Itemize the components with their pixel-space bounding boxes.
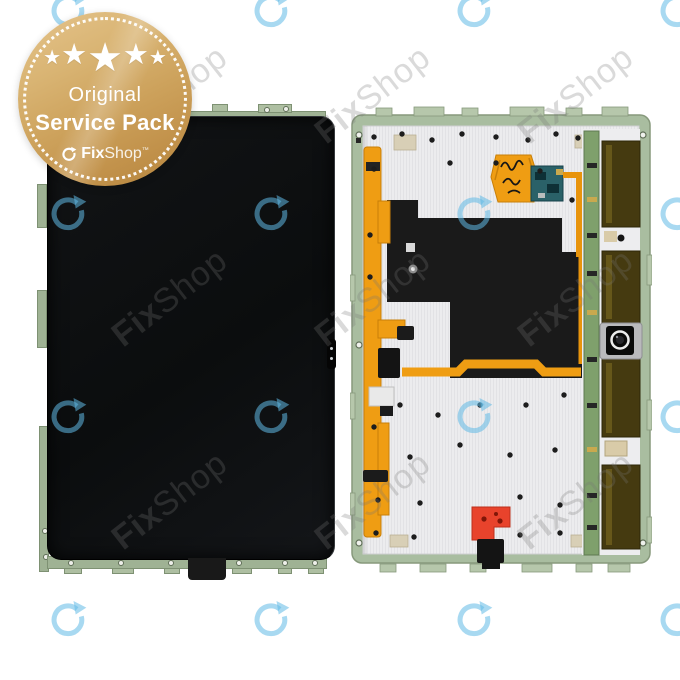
star-icon: ★ [61, 41, 87, 70]
service-pack-badge: ★★★★★ Original Service Pack FixShop™ [18, 12, 192, 186]
board-connector [605, 441, 627, 456]
star-icon: ★ [149, 48, 167, 68]
star-icon: ★ [87, 38, 123, 78]
badge-line1: Original [69, 84, 142, 107]
star-icon: ★ [123, 41, 149, 70]
frame-tab [308, 568, 324, 574]
watermark-rotate-arrow-icon [251, 0, 291, 30]
watermark-rotate-arrow-icon [657, 193, 680, 233]
watermark-rotate-arrow-icon [48, 599, 88, 639]
right-edge-assembly [582, 129, 642, 555]
frame-left-tab [37, 290, 47, 348]
badge-brand: FixShop™ [61, 145, 149, 163]
frame-tab [64, 568, 82, 574]
watermark-rotate-arrow-icon [454, 599, 494, 639]
tablet-back-panel [350, 105, 652, 575]
star-icon: ★ [43, 48, 61, 68]
front-camera-icon [327, 339, 336, 369]
edge-pcb-strip [584, 131, 599, 555]
product-photo: FixShopFixShopFixShopFixShopFixShopFixSh… [0, 0, 680, 680]
watermark-rotate-arrow-icon [657, 0, 680, 30]
frame-tab [112, 568, 134, 574]
watermark-rotate-arrow-icon [657, 599, 680, 639]
display-flex-connector [188, 558, 226, 580]
frame-tab [164, 568, 180, 574]
rotate-arrow-icon [61, 146, 77, 162]
frame-tab [212, 104, 228, 112]
brand-tm: ™ [142, 147, 149, 154]
brand-bold: Fix [81, 145, 104, 162]
brand-light: Shop [104, 145, 141, 162]
watermark-rotate-arrow-icon [454, 0, 494, 30]
frame-tab [232, 568, 252, 574]
five-star-rating: ★★★★★ [43, 38, 167, 82]
watermark-rotate-arrow-icon [251, 599, 291, 639]
badge-line2: Service Pack [35, 110, 174, 136]
frame-tab [278, 568, 292, 574]
rear-camera [600, 323, 642, 359]
watermark-rotate-arrow-icon [657, 396, 680, 436]
frame-left-tab [37, 184, 47, 228]
